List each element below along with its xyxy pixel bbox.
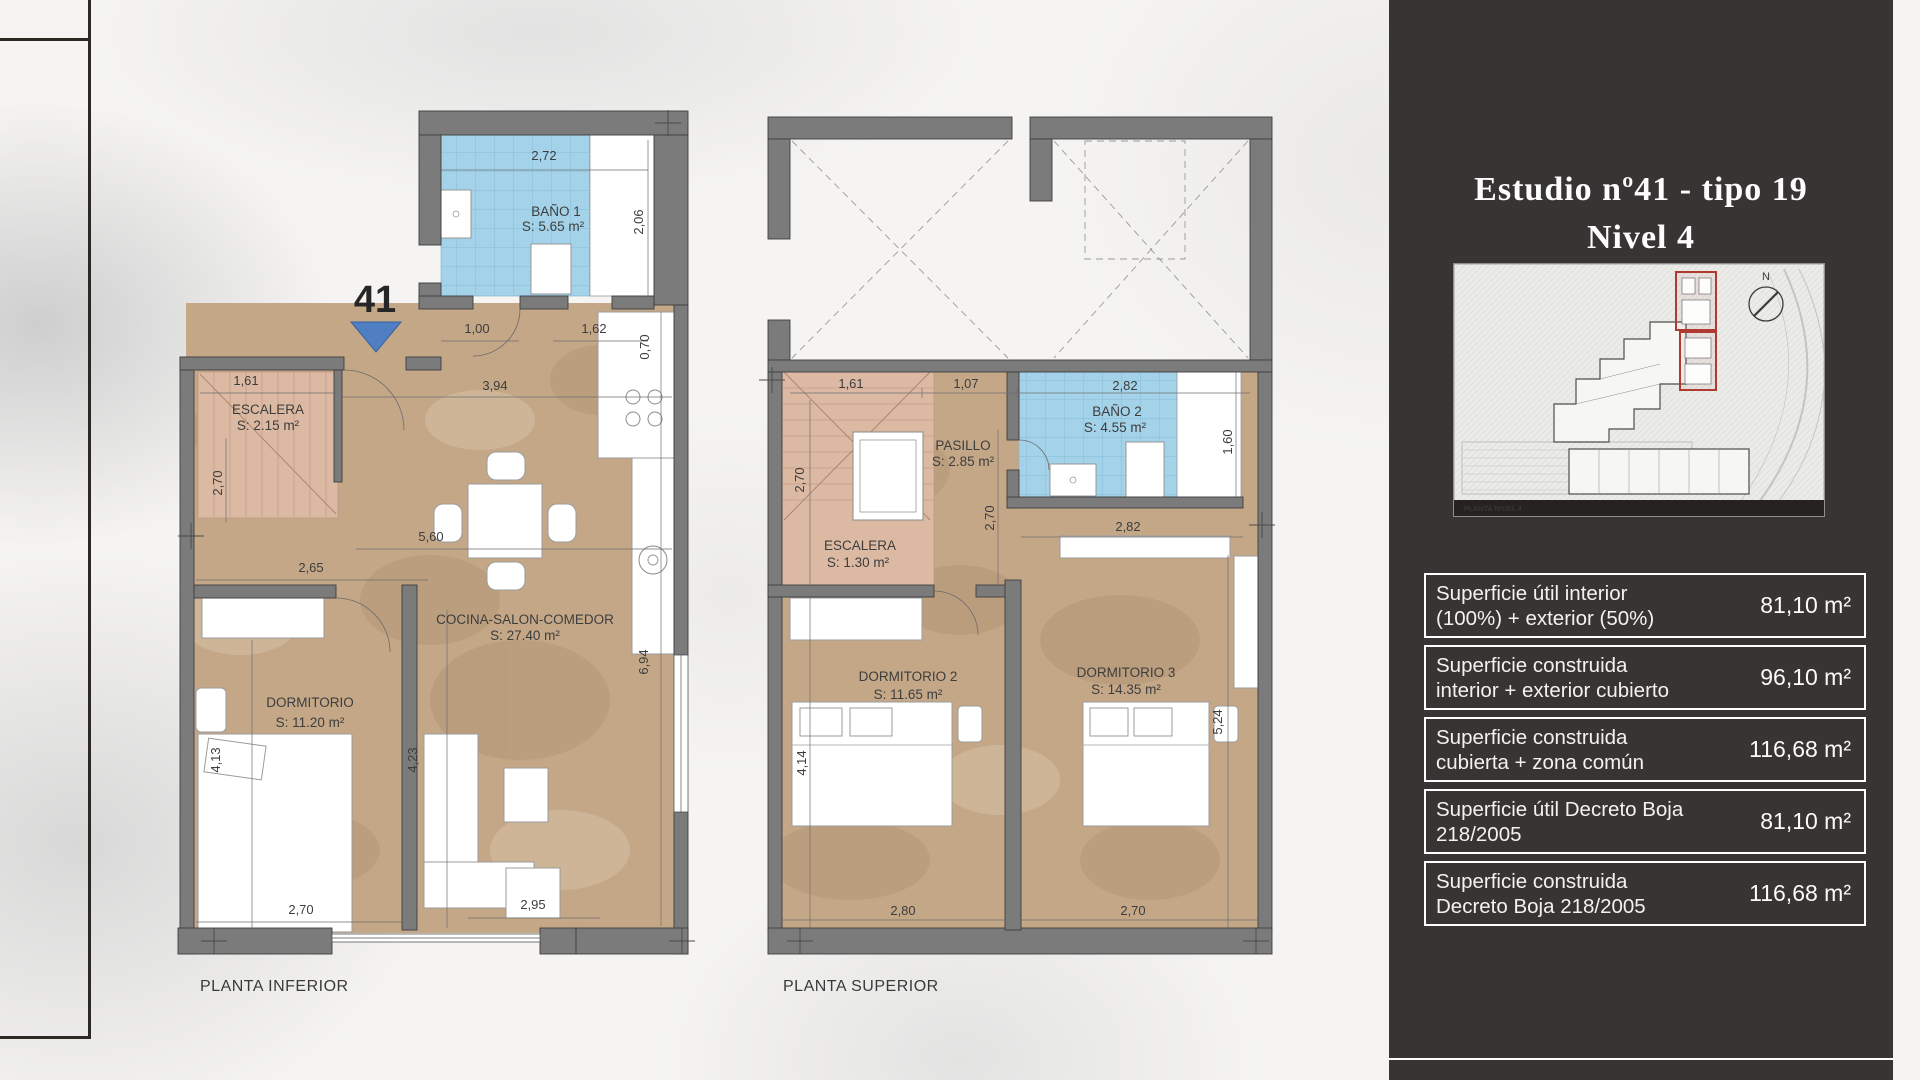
row-label: Superficie construida cubierta + zona co… [1436, 725, 1644, 775]
svg-text:2,70: 2,70 [982, 505, 997, 530]
chair [548, 504, 576, 542]
svg-text:4,13: 4,13 [208, 747, 223, 772]
row-label: Superficie construida Decreto Boja 218/2… [1436, 869, 1646, 919]
toilet [531, 244, 571, 294]
nightstand [958, 706, 982, 742]
panel-title: Estudio nº41 - tipo 19 Nivel 4 [1389, 166, 1893, 262]
dining-table [468, 484, 542, 558]
areas-table: Superficie útil interior (100%) + exteri… [1424, 573, 1866, 933]
svg-text:4,14: 4,14 [794, 750, 809, 775]
row-label: Superficie construida interior + exterio… [1436, 653, 1669, 703]
svg-text:1,62: 1,62 [581, 321, 606, 336]
left-frame-vertical-line [88, 0, 91, 1038]
left-frame-top-line [0, 38, 91, 41]
svg-text:S: 2.15 m²: S: 2.15 m² [237, 418, 300, 433]
svg-text:DORMITORIO 2: DORMITORIO 2 [859, 669, 958, 684]
chair [487, 562, 525, 590]
svg-text:PASILLO: PASILLO [935, 438, 990, 453]
svg-text:S: 11.65 m²: S: 11.65 m² [874, 687, 943, 702]
svg-text:S: 11.20 m²: S: 11.20 m² [276, 715, 345, 730]
sink [441, 190, 471, 238]
table-row: Superficie construida Decreto Boja 218/2… [1424, 861, 1866, 926]
svg-text:2,82: 2,82 [1115, 519, 1140, 534]
panel-footer-line [1389, 1058, 1893, 1060]
unit-number: 41 [354, 279, 396, 321]
panel-title-line1: Estudio nº41 - tipo 19 [1389, 166, 1893, 214]
row-value: 81,10 m² [1760, 808, 1851, 835]
svg-text:1,60: 1,60 [1220, 429, 1235, 454]
chair [487, 452, 525, 480]
pillow [1090, 708, 1128, 736]
svg-text:0,70: 0,70 [637, 334, 652, 359]
pillow [850, 708, 892, 736]
svg-text:S: 2.85 m²: S: 2.85 m² [932, 454, 995, 469]
shower [1126, 442, 1164, 497]
kitchen-cabinet [598, 312, 674, 458]
svg-text:5,24: 5,24 [1210, 709, 1225, 734]
void-rooms [792, 141, 1248, 358]
svg-text:2,70: 2,70 [1120, 903, 1145, 918]
panel-title-line2: Nivel 4 [1389, 214, 1893, 262]
row-value: 81,10 m² [1760, 592, 1851, 619]
svg-text:BAÑO 1: BAÑO 1 [531, 204, 581, 219]
svg-text:2,65: 2,65 [298, 560, 323, 575]
kitchen-counter [632, 458, 674, 654]
svg-text:2,80: 2,80 [890, 903, 915, 918]
closet [1060, 536, 1230, 558]
svg-text:2,06: 2,06 [631, 209, 646, 234]
svg-text:3,94: 3,94 [482, 378, 507, 393]
table-row: Superficie útil Decreto Boja 218/2005 81… [1424, 789, 1866, 854]
row-value: 96,10 m² [1760, 664, 1851, 691]
nightstand [196, 688, 226, 732]
page: 41 2,72 2,06 1,00 1,62 0,70 1,61 3,94 2,… [0, 0, 1920, 1080]
siteplan-caption: PLANTA NIVEL 4 [1464, 504, 1522, 513]
row-value: 116,68 m² [1749, 736, 1851, 763]
info-panel: Estudio nº41 - tipo 19 Nivel 4 [1389, 0, 1893, 1080]
svg-text:2,70: 2,70 [792, 467, 807, 492]
svg-text:DORMITORIO: DORMITORIO [266, 695, 354, 710]
svg-text:S: 27.40 m²: S: 27.40 m² [490, 628, 560, 643]
svg-text:6,94: 6,94 [636, 649, 651, 674]
svg-text:S: 1.30 m²: S: 1.30 m² [827, 555, 890, 570]
svg-text:1,61: 1,61 [838, 376, 863, 391]
svg-text:2,82: 2,82 [1112, 378, 1137, 393]
plan-caption-inferior: PLANTA INFERIOR [200, 978, 349, 995]
wardrobe [202, 598, 324, 638]
left-frame-bottom-line [0, 1036, 91, 1039]
sink [1050, 464, 1096, 496]
row-label: Superficie útil Decreto Boja 218/2005 [1436, 797, 1683, 847]
pillow [800, 708, 842, 736]
svg-text:5,60: 5,60 [418, 529, 443, 544]
svg-text:S: 14.35 m²: S: 14.35 m² [1091, 682, 1161, 697]
stairwell [853, 432, 923, 520]
svg-text:COCINA-SALON-COMEDOR: COCINA-SALON-COMEDOR [436, 612, 614, 627]
north-label: N [1762, 271, 1770, 283]
table-row: Superficie útil interior (100%) + exteri… [1424, 573, 1866, 638]
svg-text:2,70: 2,70 [210, 470, 225, 495]
svg-text:ESCALERA: ESCALERA [824, 538, 896, 553]
svg-text:1,61: 1,61 [233, 373, 258, 388]
svg-text:4,23: 4,23 [405, 747, 420, 772]
table-row: Superficie construida cubierta + zona co… [1424, 717, 1866, 782]
svg-text:2,70: 2,70 [288, 902, 313, 917]
svg-text:2,72: 2,72 [531, 148, 556, 163]
row-label: Superficie útil interior (100%) + exteri… [1436, 581, 1654, 631]
siteplan-thumbnail: N PLANTA NIVEL 4 [1454, 264, 1824, 516]
svg-text:ESCALERA: ESCALERA [232, 402, 304, 417]
sofa [424, 734, 478, 864]
pillow [1134, 708, 1172, 736]
wardrobe [1234, 556, 1258, 688]
floorplan-inferior: 41 2,72 2,06 1,00 1,62 0,70 1,61 3,94 2,… [130, 95, 730, 1010]
row-value: 116,68 m² [1749, 880, 1851, 907]
svg-text:1,00: 1,00 [464, 321, 489, 336]
svg-text:1,07: 1,07 [953, 376, 978, 391]
svg-text:2,95: 2,95 [520, 897, 545, 912]
svg-text:BAÑO 2: BAÑO 2 [1092, 404, 1142, 419]
svg-text:S: 5.65 m²: S: 5.65 m² [522, 219, 585, 234]
svg-text:DORMITORIO 3: DORMITORIO 3 [1077, 665, 1176, 680]
floorplan-superior: 1,61 1,07 2,82 1,60 2,70 2,70 2,82 4,14 … [745, 100, 1290, 1005]
svg-text:S: 4.55 m²: S: 4.55 m² [1084, 420, 1147, 435]
siteplan-drawing: N PLANTA NIVEL 4 [1454, 264, 1824, 516]
plan-caption-superior: PLANTA SUPERIOR [783, 978, 939, 995]
table-row: Superficie construida interior + exterio… [1424, 645, 1866, 710]
coffee-table [504, 768, 548, 822]
